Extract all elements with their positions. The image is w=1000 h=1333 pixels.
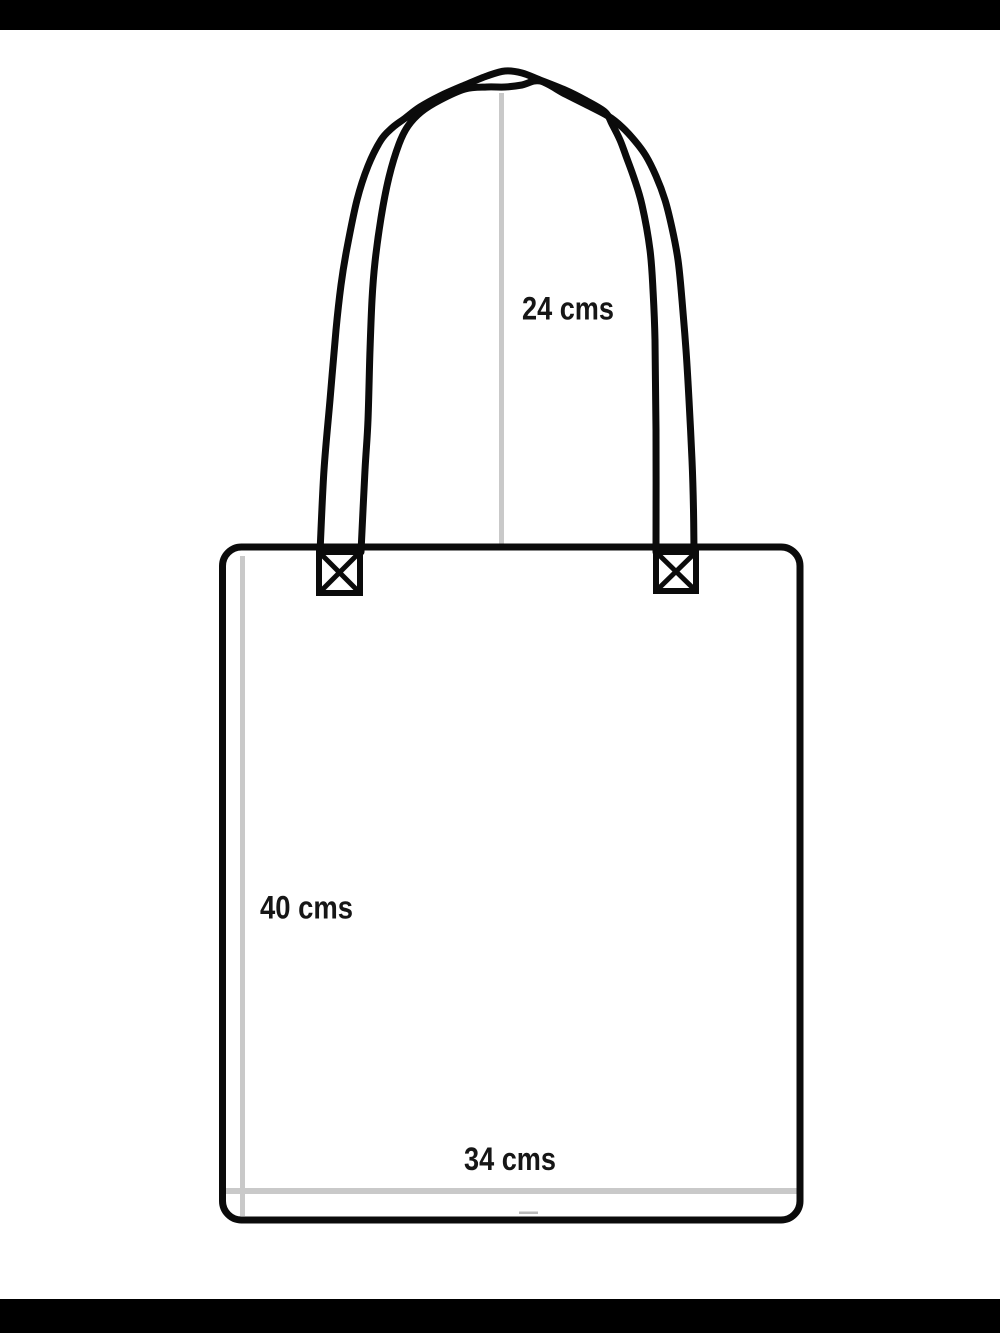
svg-text:40 cms: 40 cms [260,890,353,926]
svg-text:34 cms: 34 cms [464,1141,556,1177]
svg-text:24 cms: 24 cms [522,291,614,327]
